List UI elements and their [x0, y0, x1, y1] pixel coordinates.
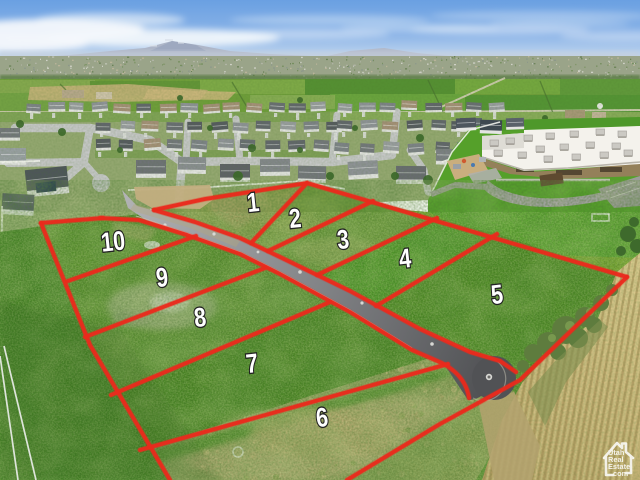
svg-text:10: 10: [100, 226, 127, 258]
svg-text:.com: .com: [611, 469, 629, 478]
